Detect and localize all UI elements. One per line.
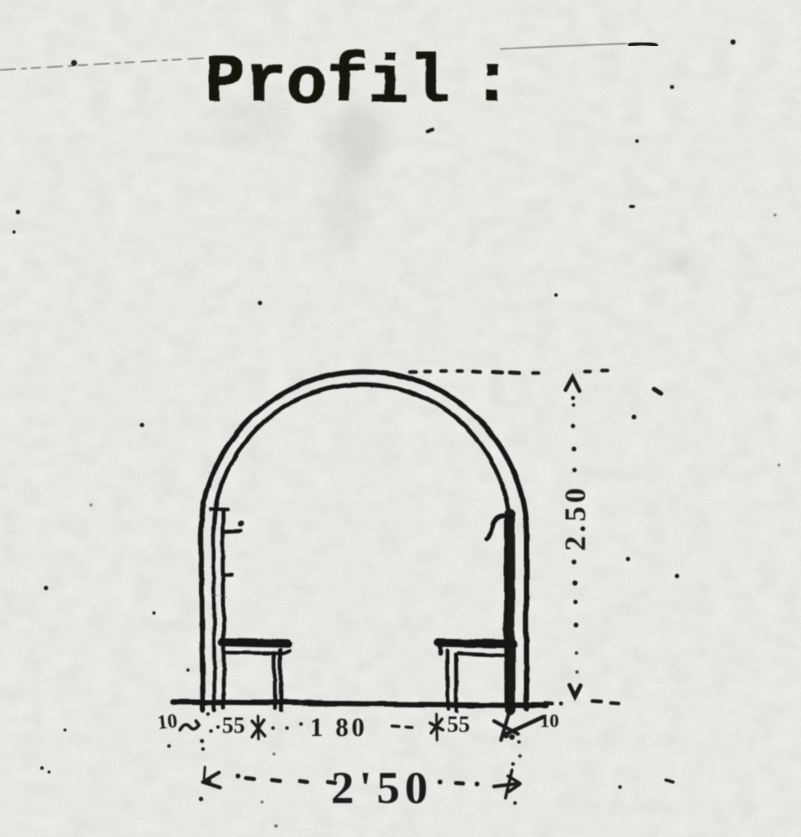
svg-text::: :	[471, 44, 512, 121]
svg-text:2.50: 2.50	[559, 485, 592, 552]
svg-text:1 80: 1 80	[310, 713, 368, 742]
svg-text:10: 10	[156, 710, 178, 734]
svg-text:2'50: 2'50	[331, 762, 433, 813]
svg-text:Profil: Profil	[204, 43, 449, 123]
svg-text:10: 10	[540, 711, 559, 732]
svg-text:55: 55	[222, 713, 245, 738]
svg-text:55: 55	[447, 712, 470, 737]
